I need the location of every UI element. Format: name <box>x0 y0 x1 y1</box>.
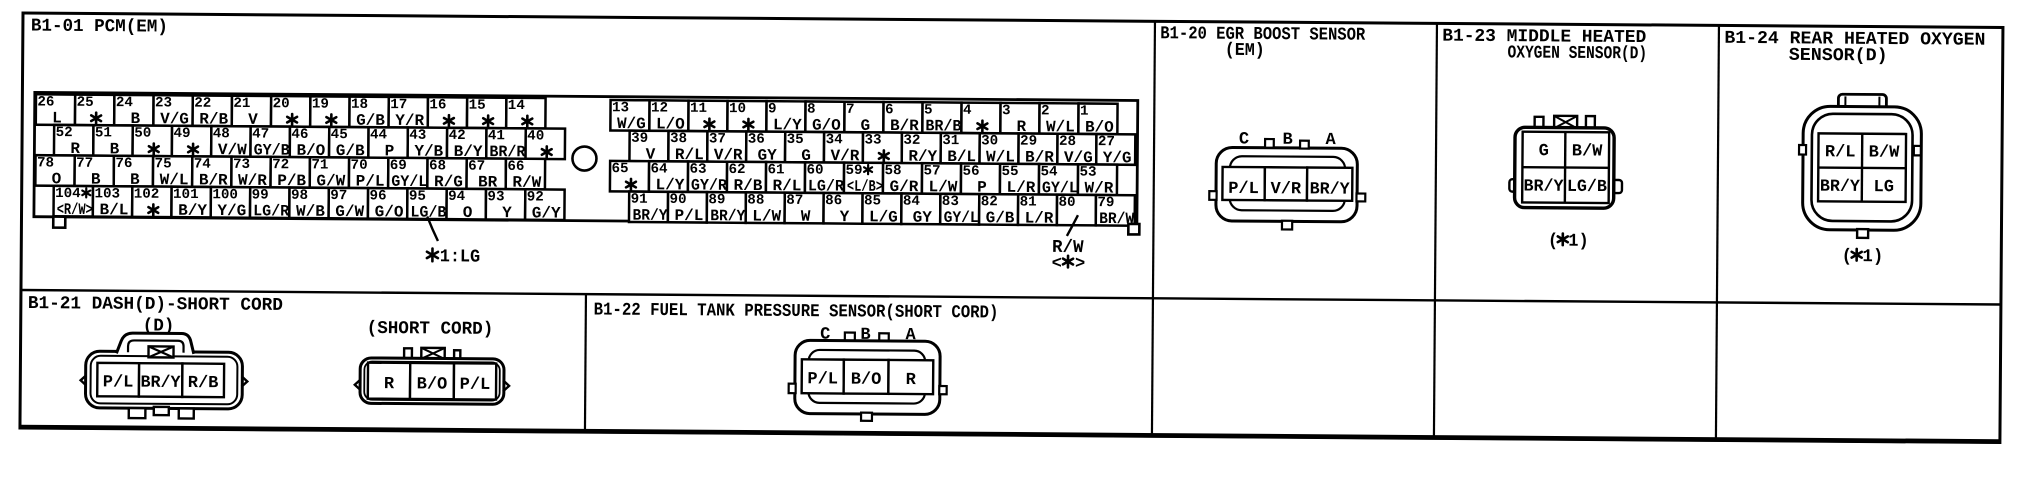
svg-text:13: 13 <box>612 100 629 116</box>
svg-text:LG: LG <box>1873 178 1894 197</box>
svg-text:OXYGEN SENSOR(D): OXYGEN SENSOR(D) <box>1507 43 1647 64</box>
svg-text:27: 27 <box>1098 134 1115 150</box>
svg-text:B/L: B/L <box>99 201 128 219</box>
svg-text:73: 73 <box>233 157 250 173</box>
svg-text:18: 18 <box>351 97 368 113</box>
svg-text:66: 66 <box>507 159 524 175</box>
svg-text:85: 85 <box>864 193 881 209</box>
svg-text:65: 65 <box>612 161 629 177</box>
svg-text:28: 28 <box>1059 134 1076 150</box>
svg-text:25: 25 <box>77 95 94 111</box>
svg-text:33: 33 <box>864 132 881 148</box>
svg-text:P/L: P/L <box>1228 180 1259 199</box>
svg-text:82: 82 <box>981 194 998 210</box>
svg-text:BR/Y: BR/Y <box>1523 178 1564 197</box>
svg-text:G/W: G/W <box>335 203 364 221</box>
svg-text:42: 42 <box>449 128 466 144</box>
svg-text:P/L: P/L <box>807 370 838 389</box>
svg-text:(SHORT CORD): (SHORT CORD) <box>367 319 494 340</box>
svg-text:40: 40 <box>527 128 544 144</box>
svg-text:24: 24 <box>116 95 134 111</box>
svg-text:72: 72 <box>272 157 289 173</box>
svg-text:77: 77 <box>76 156 93 172</box>
svg-text:74: 74 <box>194 157 212 173</box>
svg-text:B1-22 FUEL TANK PRESSURE SENSO: B1-22 FUEL TANK PRESSURE SENSOR(SHORT CO… <box>594 300 999 323</box>
svg-text:7: 7 <box>846 102 855 118</box>
svg-text:GY/L: GY/L <box>944 209 979 227</box>
svg-text:47: 47 <box>252 126 269 142</box>
svg-text:61: 61 <box>768 162 785 178</box>
svg-text:R/L: R/L <box>1825 143 1856 162</box>
svg-text:6: 6 <box>885 102 894 118</box>
svg-text:45: 45 <box>331 127 348 143</box>
svg-text:84: 84 <box>903 194 921 210</box>
svg-text:BR/Y: BR/Y <box>141 374 182 393</box>
svg-text:R: R <box>384 375 395 394</box>
svg-text:4: 4 <box>963 103 972 119</box>
svg-text:62: 62 <box>729 162 746 178</box>
svg-text:88: 88 <box>747 193 764 209</box>
svg-text:G/O: G/O <box>375 203 404 221</box>
svg-text:48: 48 <box>213 126 230 142</box>
svg-text:C: C <box>1239 130 1249 149</box>
svg-text:97: 97 <box>330 188 347 204</box>
svg-text:>: > <box>1075 255 1085 274</box>
svg-text:19: 19 <box>312 97 329 113</box>
svg-text:54: 54 <box>1041 164 1059 180</box>
svg-text:P/L: P/L <box>460 376 491 395</box>
svg-text:W: W <box>801 208 811 226</box>
svg-text:<: < <box>1052 255 1062 274</box>
svg-text:39: 39 <box>631 131 648 147</box>
svg-text:76: 76 <box>115 156 132 172</box>
svg-text:101: 101 <box>173 187 199 203</box>
svg-text:B/W: B/W <box>1869 144 1901 163</box>
svg-text:BR/Y: BR/Y <box>710 207 745 225</box>
svg-text:57: 57 <box>924 163 941 179</box>
svg-text:BR/Y: BR/Y <box>632 207 667 225</box>
svg-text:38: 38 <box>670 131 687 147</box>
svg-text:71: 71 <box>311 157 328 173</box>
svg-text:59: 59 <box>846 163 863 179</box>
svg-text:32: 32 <box>903 133 920 149</box>
svg-text:1:LG: 1:LG <box>440 247 481 267</box>
svg-text:35: 35 <box>787 132 804 148</box>
svg-text:58: 58 <box>885 163 902 179</box>
svg-text:SENSOR(D): SENSOR(D) <box>1789 46 1888 67</box>
svg-text:69: 69 <box>390 158 407 174</box>
svg-text:G: G <box>1539 142 1549 161</box>
svg-text:83: 83 <box>942 194 959 210</box>
svg-text:64: 64 <box>651 161 669 177</box>
svg-text:R/B: R/B <box>188 374 219 393</box>
svg-text:G/B: G/B <box>986 209 1015 227</box>
svg-text:89: 89 <box>708 192 725 208</box>
svg-text:102: 102 <box>134 187 160 203</box>
svg-text:9: 9 <box>768 101 777 117</box>
svg-text:96: 96 <box>370 188 387 204</box>
svg-text:Y: Y <box>840 208 850 226</box>
svg-text:103: 103 <box>94 186 120 202</box>
svg-text:P/L: P/L <box>103 373 134 392</box>
svg-text:75: 75 <box>155 156 172 172</box>
svg-text:95: 95 <box>409 189 426 205</box>
svg-text:B1-21 DASH(D)-SHORT CORD: B1-21 DASH(D)-SHORT CORD <box>28 294 283 316</box>
svg-text:B: B <box>1283 131 1293 150</box>
svg-text:79: 79 <box>1097 195 1114 211</box>
svg-text:(EM): (EM) <box>1225 41 1265 61</box>
svg-text:L/W: L/W <box>752 207 781 225</box>
svg-text:37: 37 <box>709 131 726 147</box>
svg-text:L/R: L/R <box>1025 209 1054 227</box>
svg-text:BR/Y: BR/Y <box>1310 180 1351 199</box>
svg-text:2: 2 <box>1041 103 1050 119</box>
svg-text:44: 44 <box>370 127 388 143</box>
svg-text:BR/Y: BR/Y <box>1820 178 1861 197</box>
svg-text:56: 56 <box>963 164 980 180</box>
svg-text:29: 29 <box>1020 134 1037 150</box>
svg-text:36: 36 <box>748 132 765 148</box>
svg-text:78: 78 <box>37 155 54 171</box>
svg-text:17: 17 <box>390 97 407 113</box>
svg-text:Y: Y <box>502 204 512 222</box>
svg-text:12: 12 <box>651 101 668 117</box>
svg-text:3: 3 <box>1002 103 1011 119</box>
svg-text:34: 34 <box>826 132 844 148</box>
svg-text:90: 90 <box>669 192 686 208</box>
svg-text:16: 16 <box>429 97 446 113</box>
svg-text:55: 55 <box>1002 164 1019 180</box>
svg-text:8: 8 <box>807 102 816 118</box>
svg-text:L/G: L/G <box>869 208 898 226</box>
svg-text:49: 49 <box>173 126 190 142</box>
svg-text:67: 67 <box>468 159 485 175</box>
svg-text:104: 104 <box>55 186 81 202</box>
svg-text:99: 99 <box>252 187 269 203</box>
svg-text:50: 50 <box>134 126 151 142</box>
svg-text:46: 46 <box>291 127 308 143</box>
svg-text:B/Y: B/Y <box>178 202 207 220</box>
svg-text:B/W: B/W <box>1572 142 1604 161</box>
svg-text:G/Y: G/Y <box>532 204 561 222</box>
svg-text:W/B: W/B <box>296 203 325 221</box>
svg-text:15: 15 <box>469 98 486 114</box>
svg-text:20: 20 <box>273 96 290 112</box>
svg-text:V/R: V/R <box>1270 180 1302 199</box>
svg-text:LG/R: LG/R <box>253 202 290 220</box>
svg-text:10: 10 <box>729 101 746 117</box>
svg-text:98: 98 <box>291 188 308 204</box>
svg-text:5: 5 <box>924 103 933 119</box>
svg-text:GY: GY <box>913 209 933 227</box>
svg-text:91: 91 <box>631 192 648 208</box>
svg-text:51: 51 <box>95 125 112 141</box>
svg-text:LG/B: LG/B <box>1567 178 1607 197</box>
svg-text:68: 68 <box>429 158 446 174</box>
svg-text:31: 31 <box>942 133 959 149</box>
svg-text:B/O: B/O <box>851 371 882 390</box>
svg-text:87: 87 <box>786 193 803 209</box>
svg-text:80: 80 <box>1058 195 1075 211</box>
svg-text:22: 22 <box>194 96 211 112</box>
svg-text:B/O: B/O <box>417 375 448 394</box>
svg-text:14: 14 <box>508 98 526 114</box>
svg-text:100: 100 <box>212 187 238 203</box>
svg-text:41: 41 <box>488 128 505 144</box>
svg-text:O: O <box>463 204 473 222</box>
svg-text:60: 60 <box>807 163 824 179</box>
svg-text:B1-01 PCM(EM): B1-01 PCM(EM) <box>31 17 168 38</box>
svg-text:53: 53 <box>1080 165 1097 181</box>
svg-text:43: 43 <box>409 128 426 144</box>
svg-text:1: 1 <box>1080 104 1089 120</box>
svg-text:11: 11 <box>690 101 707 117</box>
svg-text:63: 63 <box>690 162 707 178</box>
svg-text:30: 30 <box>981 133 998 149</box>
svg-text:21: 21 <box>233 96 250 112</box>
svg-text:R: R <box>906 371 917 390</box>
svg-text:26: 26 <box>37 95 54 111</box>
svg-text:52: 52 <box>56 125 73 141</box>
svg-text:92: 92 <box>527 189 544 205</box>
svg-text:23: 23 <box>155 95 172 111</box>
svg-text:94: 94 <box>448 189 466 205</box>
svg-text:81: 81 <box>1020 195 1037 211</box>
svg-text:P/L: P/L <box>674 207 703 225</box>
svg-text:86: 86 <box>825 193 842 209</box>
svg-text:A: A <box>1325 131 1336 150</box>
svg-text:70: 70 <box>351 158 368 174</box>
svg-text:93: 93 <box>487 189 504 205</box>
svg-text:Y/G: Y/G <box>217 202 246 220</box>
